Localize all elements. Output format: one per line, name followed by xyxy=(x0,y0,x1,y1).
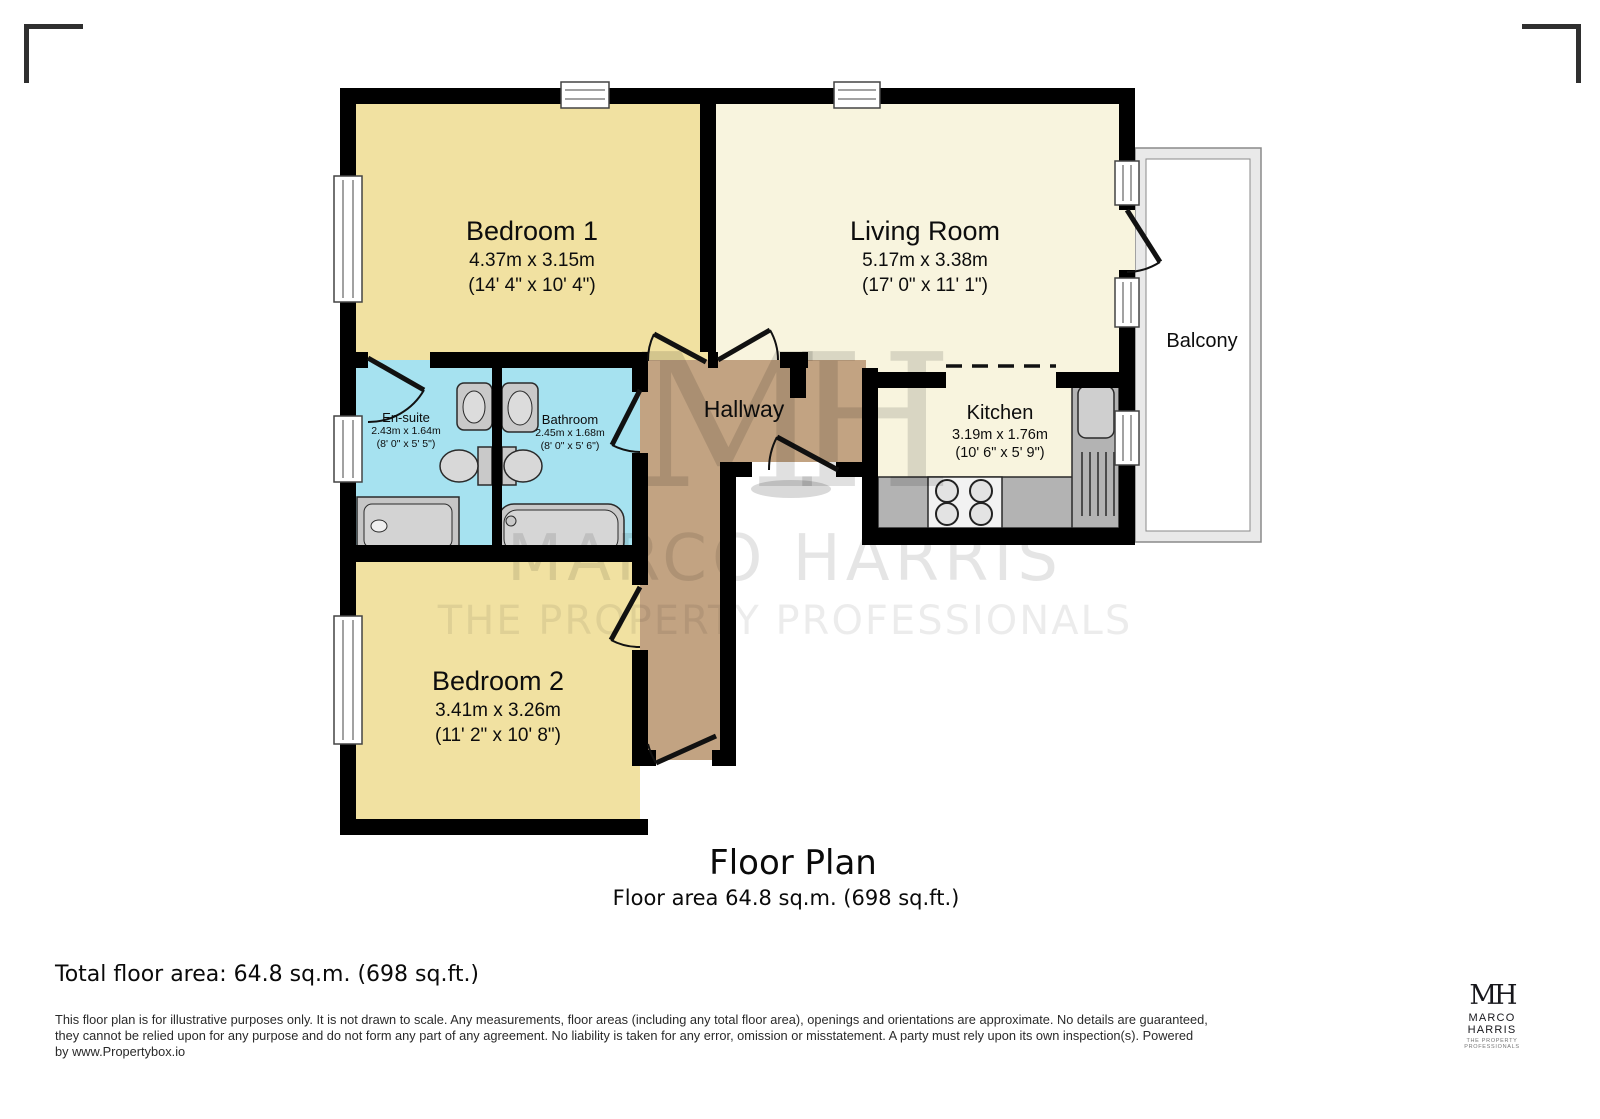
room-label-kitchen: Kitchen 3.19m x 1.76m (10' 6" x 5' 9") xyxy=(952,402,1048,463)
total-floor-area: Total floor area: 64.8 sq.m. (698 sq.ft.… xyxy=(55,962,479,987)
basin-ensuite xyxy=(457,383,492,430)
bathroom-dims-imperial: (8' 0" x 5' 6") xyxy=(535,440,604,453)
page-subtitle: Floor area 64.8 sq.m. (698 sq.ft.) xyxy=(613,886,960,910)
ensuite-dims-imperial: (8' 0" x 5' 5") xyxy=(371,438,440,451)
bedroom1-name: Bedroom 1 xyxy=(466,216,598,248)
room-label-ensuite: En-suite 2.43m x 1.64m (8' 0" x 5' 5") xyxy=(371,410,440,452)
living-room-dims-imperial: (17' 0" x 11' 1") xyxy=(850,273,1000,298)
entrance-step-shadow xyxy=(751,480,831,498)
disclaimer-line-1: This floor plan is for illustrative purp… xyxy=(55,1012,1208,1028)
disclaimer-text: This floor plan is for illustrative purp… xyxy=(55,1012,1208,1059)
kitchen-dims-imperial: (10' 6" x 5' 9") xyxy=(952,444,1048,463)
bedroom1-dims-metric: 4.37m x 3.15m xyxy=(466,248,598,273)
window-bedroom1 xyxy=(334,176,362,302)
living-room-name: Living Room xyxy=(850,216,1000,248)
kitchen-name: Kitchen xyxy=(952,402,1048,426)
window-top-bedroom1 xyxy=(561,82,609,108)
ensuite-dims-metric: 2.43m x 1.64m xyxy=(371,425,440,438)
window-balcony-1 xyxy=(1115,161,1139,205)
window-ensuite xyxy=(334,416,362,482)
window-top-living xyxy=(834,82,880,108)
window-balcony-2 xyxy=(1115,278,1139,327)
marco-harris-logo: MH MARCO HARRIS THE PROPERTY PROFESSIONA… xyxy=(1449,982,1535,1050)
room-label-balcony: Balcony xyxy=(1166,330,1237,354)
bedroom2-dims-metric: 3.41m x 3.26m xyxy=(432,698,564,723)
bathroom-name: Bathroom xyxy=(535,412,604,427)
page-title: Floor Plan xyxy=(709,843,877,883)
floor-plan-page: Bedroom 1 4.37m x 3.15m (14' 4" x 10' 4"… xyxy=(0,0,1600,1119)
bathroom-dims-metric: 2.45m x 1.68m xyxy=(535,427,604,440)
kitchen-sink xyxy=(1078,386,1114,438)
disclaimer-line-3: by www.Propertybox.io xyxy=(55,1044,1208,1060)
logo-name: MARCO HARRIS xyxy=(1449,1012,1535,1036)
floor-plan-drawing xyxy=(0,0,1600,1119)
bedroom2-name: Bedroom 2 xyxy=(432,666,564,698)
basin-bathroom xyxy=(502,383,538,432)
window-bedroom2 xyxy=(334,616,362,744)
logo-monogram: MH xyxy=(1449,982,1535,1009)
room-label-living-room: Living Room 5.17m x 3.38m (17' 0" x 11' … xyxy=(850,216,1000,298)
window-balcony-3 xyxy=(1115,411,1139,465)
kitchen-dims-metric: 3.19m x 1.76m xyxy=(952,426,1048,445)
bedroom2-dims-imperial: (11' 2" x 10' 8") xyxy=(432,723,564,748)
logo-tagline: THE PROPERTY PROFESSIONALS xyxy=(1449,1038,1535,1050)
toilet-ensuite xyxy=(440,447,492,485)
room-label-hallway: Hallway xyxy=(704,396,785,423)
room-label-bedroom1: Bedroom 1 4.37m x 3.15m (14' 4" x 10' 4"… xyxy=(466,216,598,298)
disclaimer-line-2: they cannot be relied upon for any purpo… xyxy=(55,1028,1208,1044)
bedroom1-dims-imperial: (14' 4" x 10' 4") xyxy=(466,273,598,298)
room-label-bedroom2: Bedroom 2 3.41m x 3.26m (11' 2" x 10' 8"… xyxy=(432,666,564,748)
room-label-bathroom: Bathroom 2.45m x 1.68m (8' 0" x 5' 6") xyxy=(535,412,604,454)
ensuite-name: En-suite xyxy=(371,410,440,425)
living-room-dims-metric: 5.17m x 3.38m xyxy=(850,248,1000,273)
